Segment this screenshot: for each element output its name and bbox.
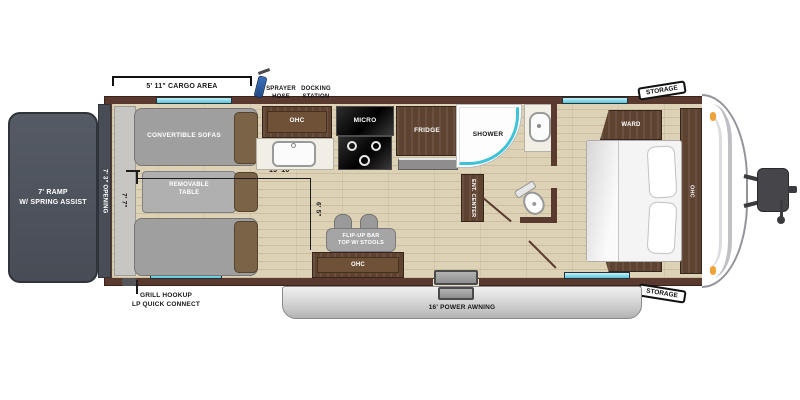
sprayer-hose-label: SPRAYER HOSE xyxy=(264,85,298,101)
pillow xyxy=(647,145,678,198)
burner-icon xyxy=(371,141,381,151)
sofa-top-cushion xyxy=(234,112,258,164)
entertainment-center: ENT. CENTER xyxy=(461,174,484,222)
stove-cooktop xyxy=(338,136,392,170)
flip-up-bar: FLIP-UP BAR TOP W/ STOOLS xyxy=(326,228,396,252)
dim-line-1310 xyxy=(137,178,311,179)
burner-icon xyxy=(347,141,357,151)
window-garage-top xyxy=(156,97,232,104)
sprayer-hose-nozzle xyxy=(258,68,270,75)
bottom-ohc-label: OHC xyxy=(313,261,403,269)
kitchen-ohc-cabinet: OHC xyxy=(262,106,332,138)
burner-icon xyxy=(359,155,370,166)
propane-cover xyxy=(757,168,789,212)
bath-wall-top xyxy=(551,104,557,166)
dim-line-vertical xyxy=(310,178,311,250)
shower-label: SHOWER xyxy=(463,131,513,140)
cargo-area-label: 5' 11" CARGO AREA xyxy=(112,82,252,91)
fridge-counter xyxy=(398,158,458,170)
kitchen-ohc-label: OHC xyxy=(263,117,331,126)
grill-hookup-connector xyxy=(122,278,136,286)
fridge-label: FRIDGE xyxy=(414,127,440,136)
power-awning-label: 16' POWER AWNING xyxy=(429,304,496,318)
ramp-opening-strip: 7' 3" OPENING xyxy=(98,104,111,278)
kitchen-faucet xyxy=(291,143,296,148)
storage-top-label: STORAGE xyxy=(646,85,679,97)
floor-plan: 7' RAMP W/ SPRING ASSIST 7' 3" OPENING 5… xyxy=(0,0,800,400)
front-cap-accent2 xyxy=(708,114,722,268)
flip-up-bar-label: FLIP-UP BAR TOP W/ STOOLS xyxy=(338,233,384,248)
garage-width-dim: 7' 7" xyxy=(118,180,128,220)
bottom-ohc-cabinet: OHC xyxy=(312,252,404,278)
storage-bottom-label: STORAGE xyxy=(646,288,679,300)
removable-table-label: REMOVABLE TABLE xyxy=(142,181,236,197)
pillow xyxy=(647,201,678,254)
storage-tag-bottom: STORAGE xyxy=(637,283,686,303)
hitch-jack-wheel xyxy=(777,216,785,224)
bath-faucet xyxy=(537,124,541,128)
wardrobe-top-label: WARD xyxy=(601,121,661,129)
ent-center-label: ENT. CENTER xyxy=(462,175,483,221)
fridge: FRIDGE xyxy=(396,106,458,156)
bed-blanket-fold xyxy=(587,141,619,261)
wardrobe-top: WARD xyxy=(600,110,662,140)
front-cap xyxy=(702,94,748,288)
entry-step-upper xyxy=(434,270,478,285)
docking-station-label: DOCKING STATION xyxy=(298,85,334,101)
microwave-label: MICRO xyxy=(354,117,377,126)
bed-ohc-headboard: OHC xyxy=(680,108,702,274)
window-bedroom-top xyxy=(562,97,628,104)
marker-light-bottom xyxy=(710,266,716,275)
marker-light-top xyxy=(710,112,716,121)
sofa-bottom-cushion xyxy=(234,221,258,273)
hitch-coupler xyxy=(788,186,797,193)
window-bedroom-bottom xyxy=(564,272,630,279)
garage-mid-dim: 6' 5" xyxy=(312,192,322,226)
entry-step-lower xyxy=(438,287,474,300)
rear-ramp-door: 7' RAMP W/ SPRING ASSIST xyxy=(8,112,98,283)
grill-hookup-label: GRILL HOOKUP LP QUICK CONNECT xyxy=(120,292,212,310)
bed-ohc-label: OHC xyxy=(681,109,701,273)
ramp-label: 7' RAMP W/ SPRING ASSIST xyxy=(19,188,87,207)
convertible-sofas-label: CONVERTIBLE SOFAS xyxy=(134,132,234,141)
dim-tick-left xyxy=(136,172,138,184)
microwave: MICRO xyxy=(336,106,394,136)
ramp-opening-label: 7' 3" OPENING xyxy=(99,105,110,277)
